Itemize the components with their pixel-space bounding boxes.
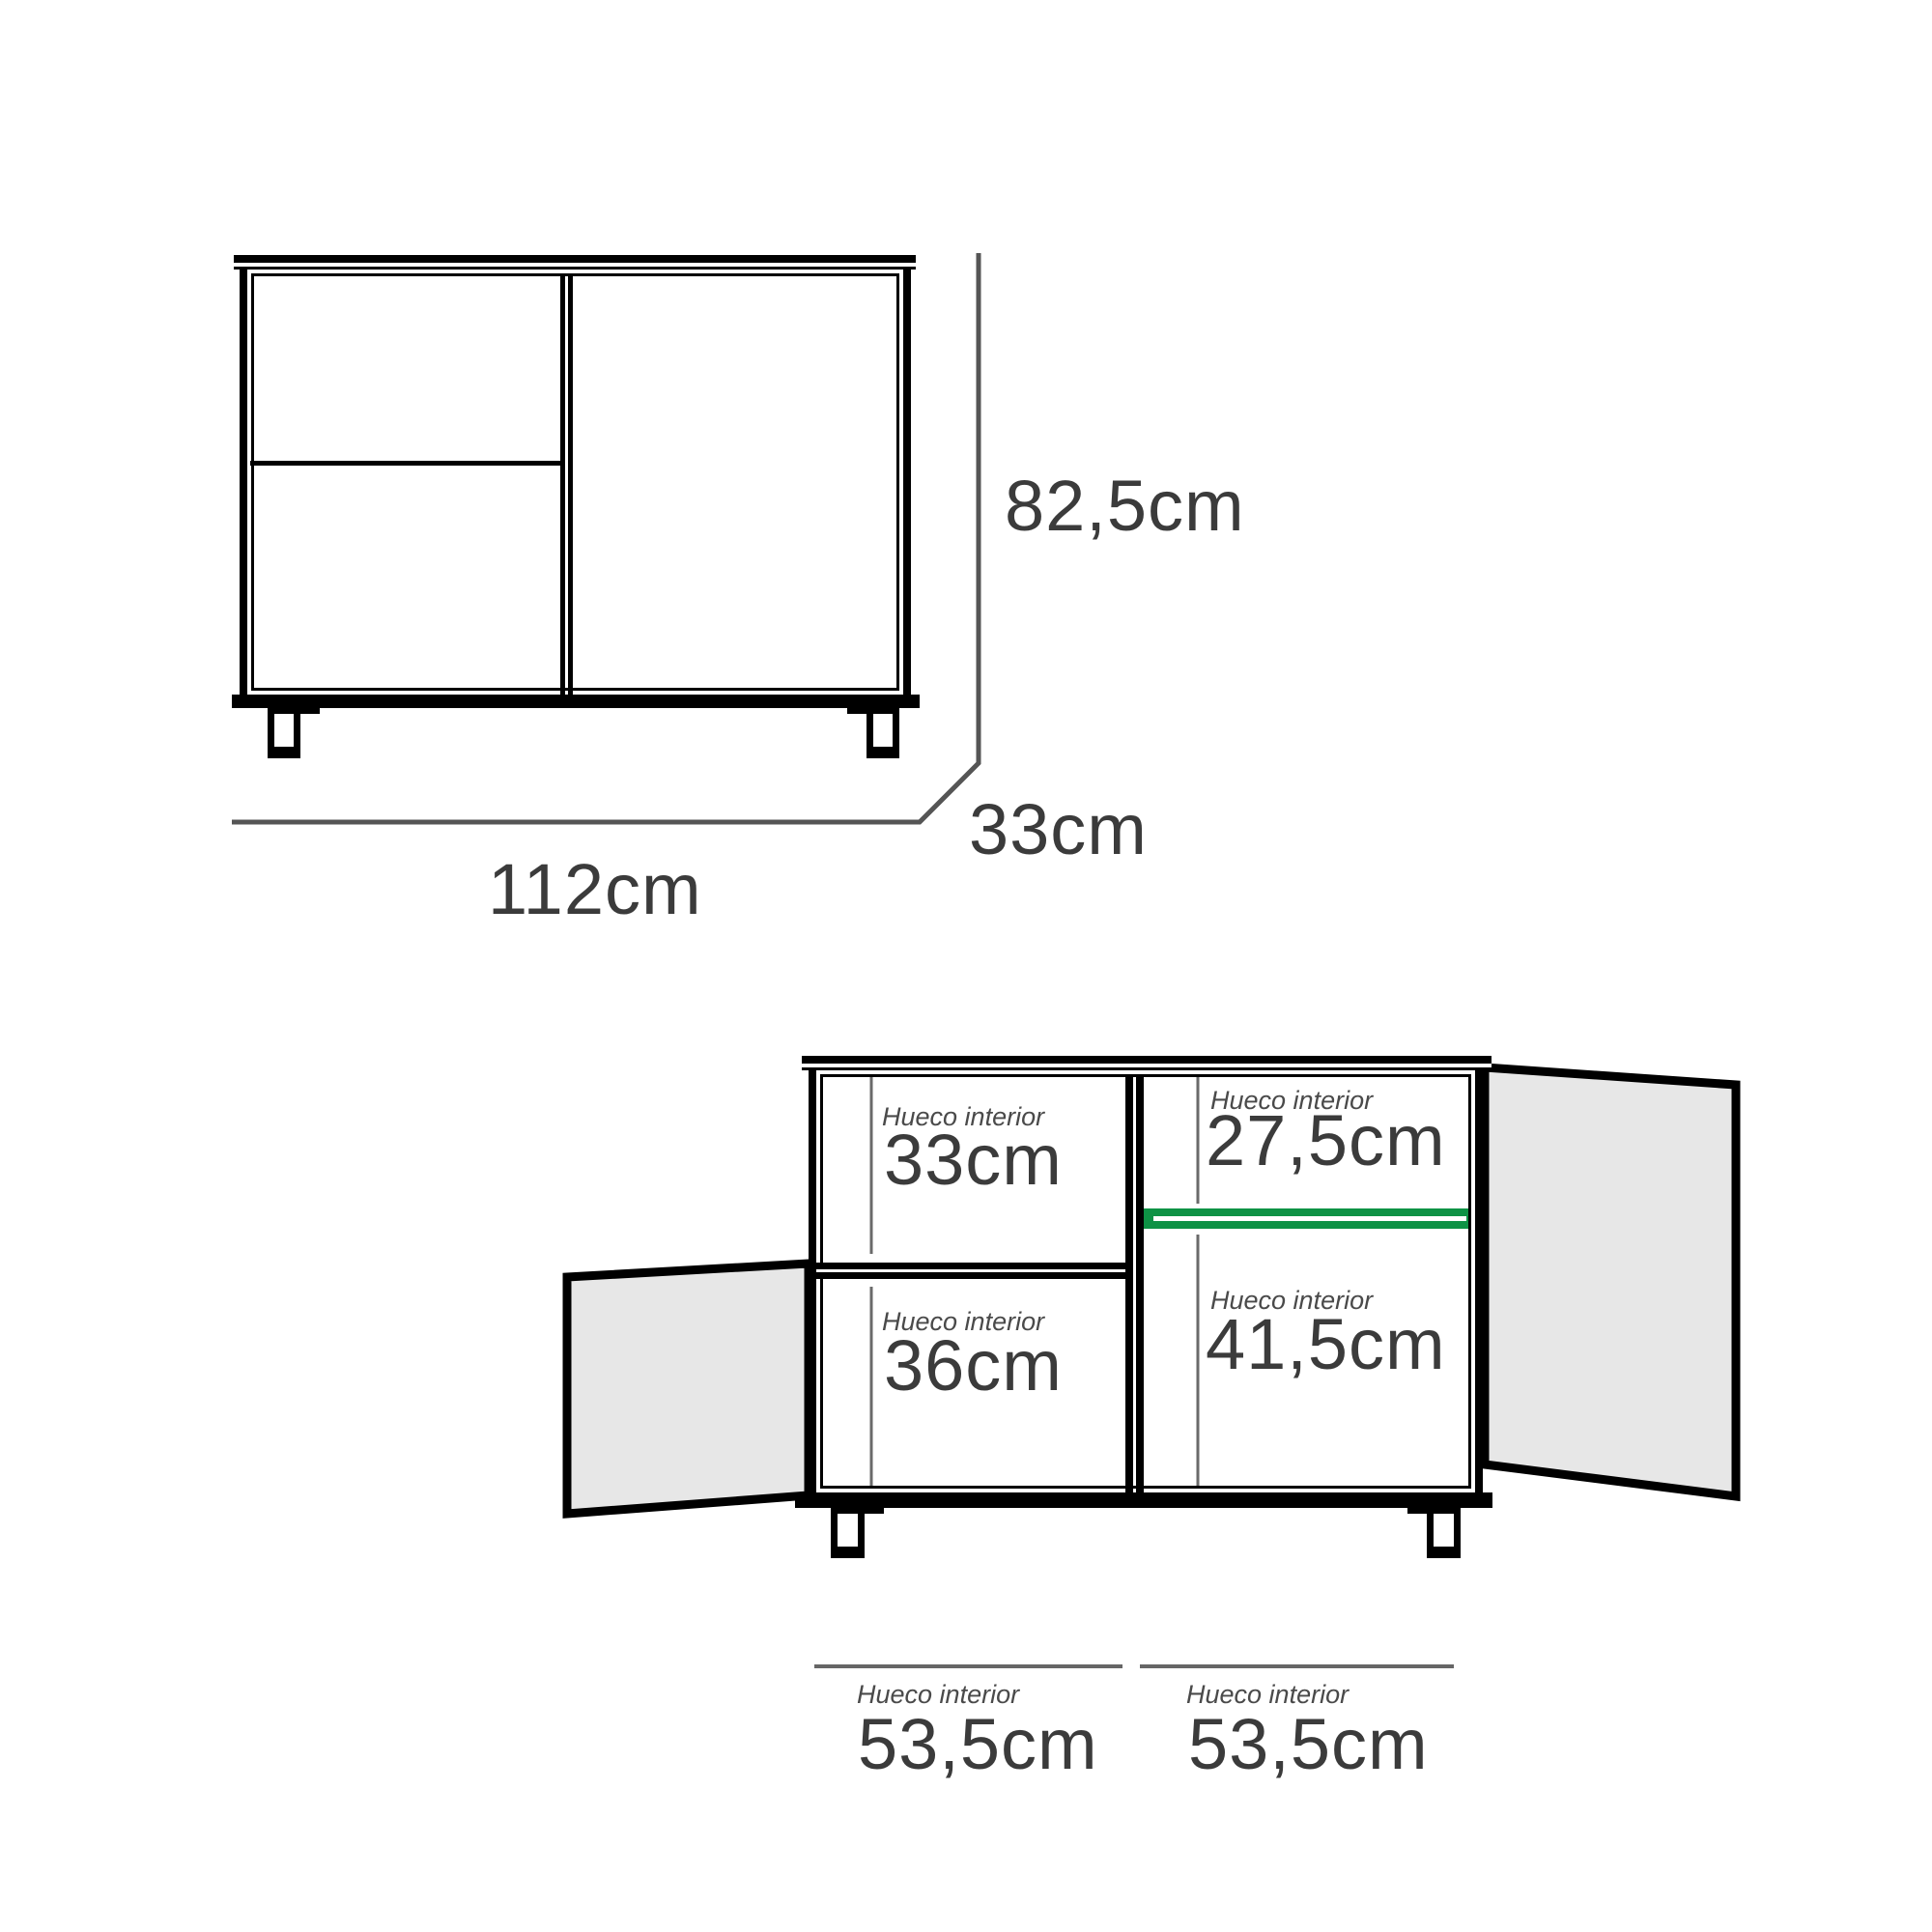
front-cabinet-top-panel: [234, 255, 916, 270]
depth-dimension-label: 33cm: [969, 794, 1148, 866]
furniture-dimensions-diagram: 82,5cm 33cm 112cm Hueco interior 33cm Hu…: [0, 0, 1932, 1932]
compartment-value-top-right: 27,5cm: [1206, 1105, 1446, 1177]
green-shelf-stripe: [1153, 1216, 1466, 1221]
width-dimension-label: 112cm: [488, 854, 702, 925]
front-left-leg: [268, 708, 300, 758]
open-right-door: [1485, 1067, 1736, 1496]
bottom-dimension-value-left: 53,5cm: [858, 1709, 1098, 1780]
front-vertical-divider-line-2: [568, 273, 573, 695]
open-cabinet-bottom-band: [795, 1492, 1492, 1508]
bottom-dimension-value-right: 53,5cm: [1188, 1709, 1429, 1780]
open-right-leg: [1427, 1508, 1461, 1558]
front-right-leg-mount: [847, 708, 867, 714]
open-left-column-divider: [816, 1263, 1125, 1279]
compartment-value-bottom-right: 41,5cm: [1206, 1309, 1446, 1380]
open-left-leg-mount: [865, 1508, 884, 1514]
compartment-value-bottom-left: 36cm: [884, 1330, 1063, 1402]
open-center-divider-line-2: [1136, 1074, 1144, 1492]
front-cabinet-inner-frame: [251, 273, 899, 691]
front-cabinet-body: [240, 270, 911, 695]
open-right-leg-mount: [1407, 1508, 1427, 1514]
open-left-door: [567, 1264, 809, 1514]
front-cabinet-bottom-band: [232, 695, 920, 708]
green-shelf: [1144, 1208, 1468, 1229]
compartment-value-top-left: 33cm: [884, 1124, 1063, 1196]
front-left-leg-mount: [300, 708, 320, 714]
front-vertical-divider-line-1: [560, 273, 565, 695]
open-left-leg: [831, 1508, 865, 1558]
front-right-leg: [867, 708, 899, 758]
height-dimension-label: 82,5cm: [1005, 470, 1245, 542]
open-center-divider-line-1: [1125, 1074, 1133, 1492]
front-horizontal-divider: [250, 461, 560, 466]
open-cabinet-top-panel: [802, 1056, 1492, 1070]
